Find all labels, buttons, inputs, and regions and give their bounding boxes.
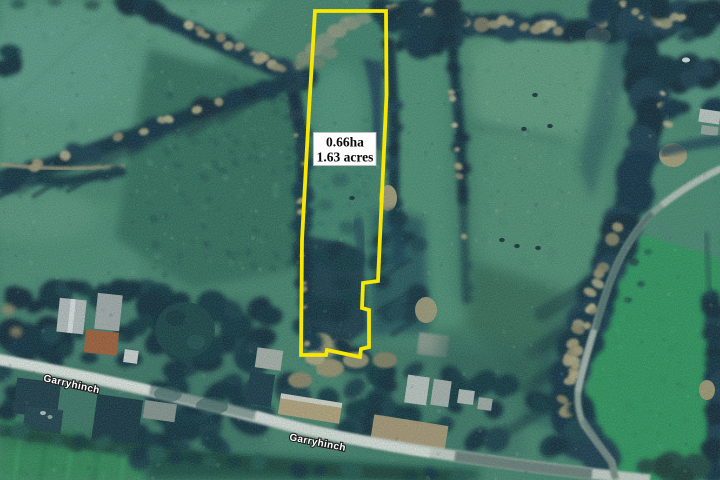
svg-text:0.66ha: 0.66ha [326, 135, 364, 150]
svg-text:1.63 acres: 1.63 acres [317, 150, 374, 165]
